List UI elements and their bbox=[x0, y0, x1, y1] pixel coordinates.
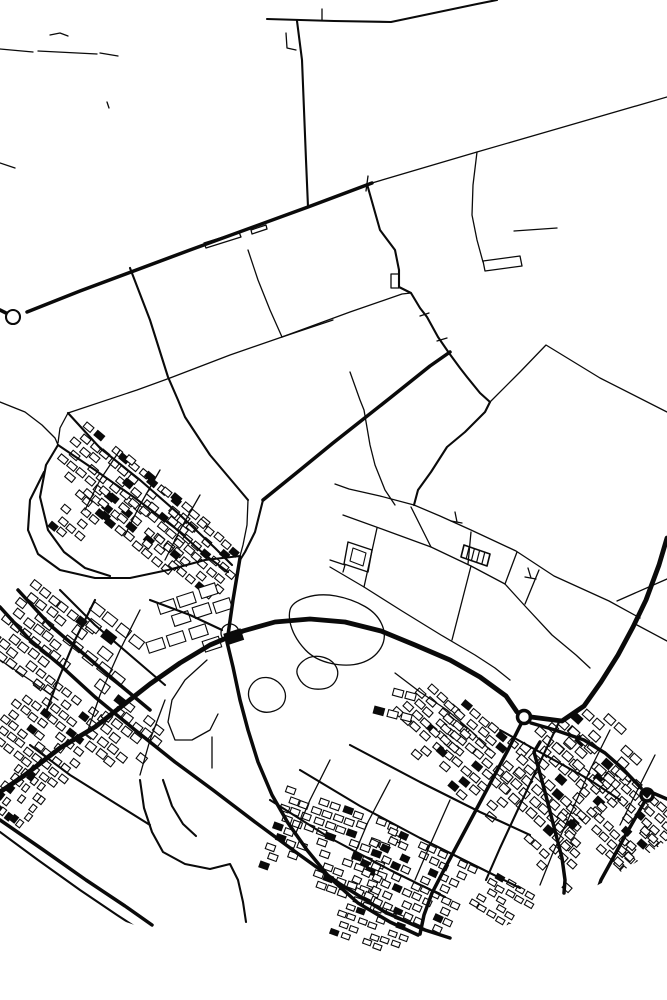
map-canvas bbox=[0, 0, 667, 1000]
map-poster bbox=[0, 0, 667, 1000]
